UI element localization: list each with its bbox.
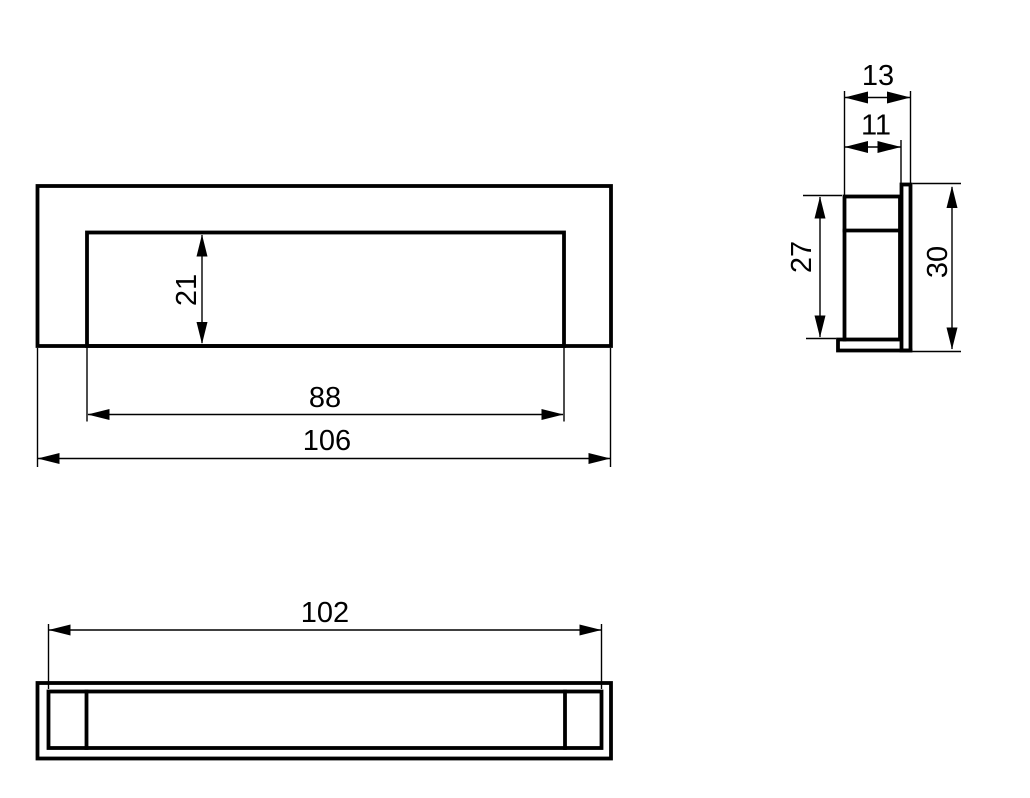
- arrowhead-right-icon: [878, 141, 902, 153]
- dim-label-body-height: 27: [786, 241, 818, 273]
- drawing-svg: 21 88 106: [0, 0, 1030, 798]
- dim-label-inner-depth: 11: [861, 110, 891, 142]
- arrowhead-left-icon: [88, 409, 110, 420]
- dim-recess-width: 88: [87, 348, 564, 422]
- front-recess-profile: [87, 233, 564, 347]
- bottom-inner-profile: [49, 692, 602, 749]
- arrowhead-right-icon: [887, 92, 911, 104]
- dim-inner-depth: 11: [845, 110, 902, 184]
- side-view: 13 11 27: [786, 60, 961, 352]
- arrowhead-up-icon: [947, 186, 958, 208]
- dim-recess-height: 21: [171, 235, 208, 345]
- arrowhead-right-icon: [589, 453, 611, 464]
- arrowhead-right-icon: [580, 625, 602, 636]
- dim-label-recess-height: 21: [171, 274, 203, 306]
- arrowhead-down-icon: [947, 328, 958, 350]
- arrowhead-down-icon: [197, 322, 208, 344]
- front-view: 21 88 106: [38, 186, 612, 467]
- arrowhead-left-icon: [845, 141, 869, 153]
- arrowhead-up-icon: [197, 235, 208, 257]
- bottom-view: 102: [38, 597, 612, 759]
- dim-label-recess-width: 88: [309, 382, 341, 414]
- dim-label-overall-width: 106: [303, 425, 351, 457]
- arrowhead-down-icon: [815, 316, 826, 338]
- front-outer-profile: [38, 186, 612, 346]
- dim-inner-length: 102: [49, 597, 602, 689]
- dim-label-overall-depth: 13: [862, 60, 894, 92]
- dim-label-inner-length: 102: [301, 597, 349, 629]
- arrowhead-left-icon: [49, 625, 71, 636]
- side-flange-profile: [902, 185, 911, 351]
- dim-body-height: 27: [786, 196, 842, 339]
- dim-overall-height: 30: [913, 184, 962, 352]
- side-body-profile: [845, 197, 901, 340]
- arrowhead-left-icon: [845, 92, 869, 104]
- arrowhead-right-icon: [542, 409, 564, 420]
- arrowhead-left-icon: [38, 453, 60, 464]
- dim-label-overall-height: 30: [922, 246, 954, 278]
- arrowhead-up-icon: [815, 197, 826, 219]
- technical-drawing-canvas: 21 88 106: [0, 0, 1030, 798]
